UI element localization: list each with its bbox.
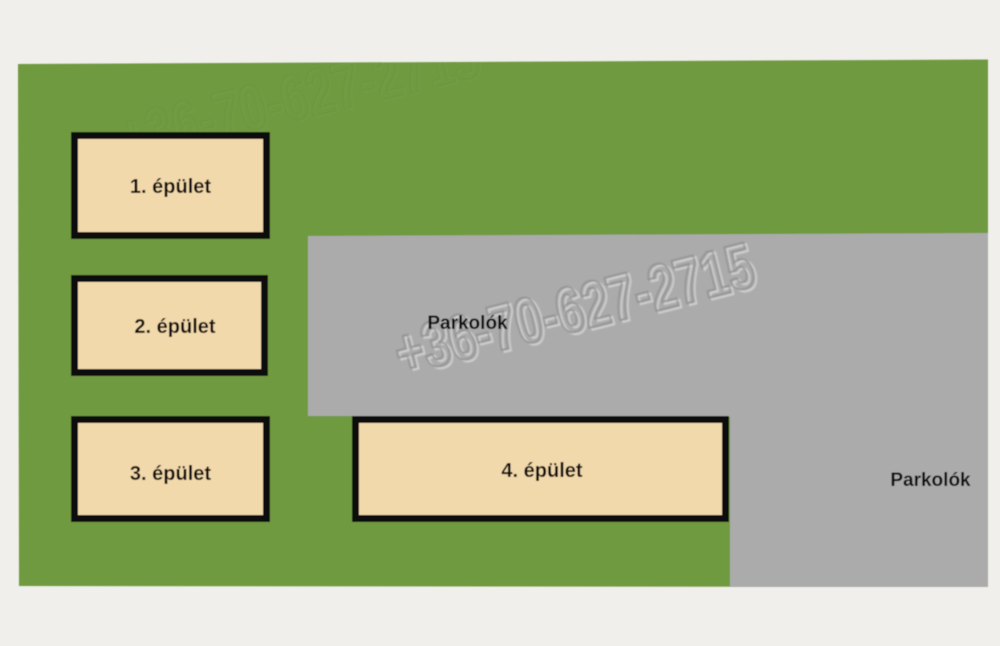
svg-text:4. épület: 4. épület [501,460,582,482]
svg-text:2. épület: 2. épület [134,316,215,338]
svg-text:3. épület: 3. épület [130,463,211,485]
svg-text:Parkolók: Parkolók [890,470,971,491]
svg-text:1. épület: 1. épület [130,176,211,198]
svg-text:Parkolók: Parkolók [427,313,508,334]
